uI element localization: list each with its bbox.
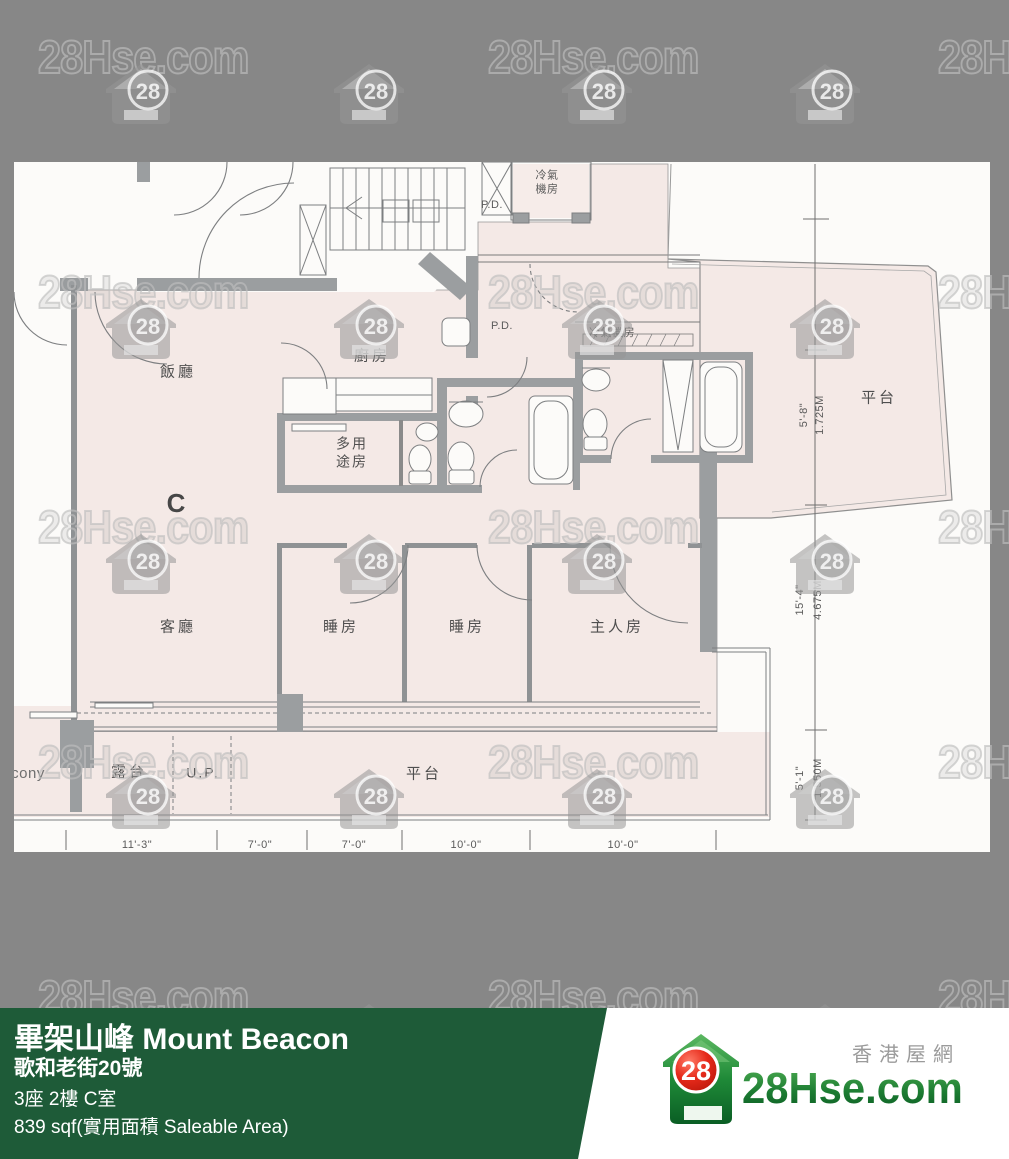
logo-badge-28: 28 [681, 1056, 711, 1086]
dim-right-2-m: 4.675M [812, 580, 826, 620]
property-unit: 3座 2樓 C室 [14, 1084, 116, 1111]
multi-line1: 多用 [336, 436, 368, 452]
room-label-ac-top: 冷氣 機房 [536, 169, 559, 197]
room-label-pd-top: P.D. [481, 199, 503, 213]
logo-tagline: 香港屋網 [852, 1038, 960, 1067]
site-logo[interactable]: 28 香港屋網 28Hse.com [660, 1030, 1000, 1150]
watermark-house-icon: 28 [560, 62, 634, 124]
room-label-living: 客廳 [160, 619, 196, 638]
svg-text:28: 28 [820, 79, 844, 104]
room-label-master: 主人房 [590, 619, 644, 638]
room-label-kitchen: 廚房 [354, 348, 390, 367]
dim-bottom-5: 10'-0" [607, 839, 638, 852]
dim-bottom-2: 7'-0" [248, 839, 272, 852]
property-info-banner: 畢架山峰 Mount Beacon 歌和老街20號 3座 2樓 C室 839 s… [0, 1008, 620, 1159]
watermark-house-icon: 28 [104, 62, 178, 124]
watermark-house-icon: 28 [788, 62, 862, 124]
multi-line2: 途房 [336, 453, 368, 469]
svg-text:28: 28 [364, 79, 388, 104]
dim-right-3-ft: 5'-1" [794, 766, 808, 790]
watermark-text: 28Hse.com [488, 30, 699, 84]
room-label-multipurpose: 多用 途房 [336, 436, 368, 471]
watermark-text: 28Hse.com [38, 30, 249, 84]
room-label-up: U.P. [186, 764, 219, 782]
dim-bottom-3: 7'-0" [342, 839, 366, 852]
dim-right-3-m: 1.550M [812, 758, 826, 798]
room-label-dining: 飯廳 [160, 364, 196, 383]
property-address: 歌和老街20號 [14, 1052, 142, 1082]
svg-text:28: 28 [592, 79, 616, 104]
dim-right-1-m: 1.725M [814, 395, 828, 435]
dim-right-1-ft: 5'-8" [798, 403, 812, 427]
room-label-pd-mid: P.D. [491, 320, 513, 334]
unit-letter: C [167, 487, 186, 520]
room-label-ac-right: 冷氣機房 [589, 327, 635, 341]
room-label-balcony-zh: 露台 [111, 764, 147, 783]
dim-bottom-4: 10'-0" [450, 839, 481, 852]
floorplan-drawing [14, 162, 990, 852]
logo-site-name: 28Hse.com [742, 1064, 963, 1114]
room-label-bedroom1: 睡房 [323, 619, 359, 638]
ac-top-line1: 冷氣 [536, 169, 559, 181]
room-label-balcony-en: Balcony [14, 765, 45, 784]
room-label-terrace-bottom: 平台 [406, 766, 442, 785]
room-label-terrace-right: 平台 [861, 390, 897, 409]
ac-top-line2: 機房 [536, 183, 559, 195]
dim-bottom-1: 11'-3" [122, 839, 152, 852]
dim-right-2-ft: 15'-4" [794, 584, 808, 615]
room-label-bedroom2: 睡房 [449, 619, 485, 638]
svg-text:28: 28 [136, 79, 160, 104]
watermark-house-icon: 28 [332, 62, 406, 124]
screenshot-stage: 飯廳 廚房 P.D. 冷氣 機房 P.D. 冷氣機房 多用 途房 C 客廳 睡房… [0, 0, 1009, 1159]
property-area: 839 sqf(實用面積 Saleable Area) [14, 1112, 289, 1139]
site-logo-house-icon: 28 [660, 1030, 742, 1126]
floorplan-sheet: 飯廳 廚房 P.D. 冷氣 機房 P.D. 冷氣機房 多用 途房 C 客廳 睡房… [14, 162, 990, 852]
watermark-text: 28Hse.com [938, 30, 1009, 84]
